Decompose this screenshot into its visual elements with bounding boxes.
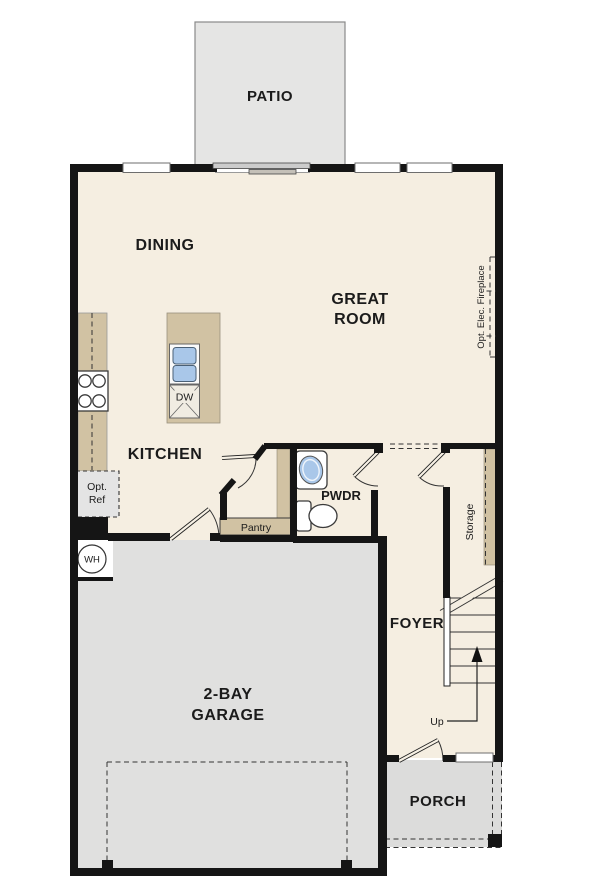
patio-label: PATIO xyxy=(247,88,293,105)
wall-porch-top xyxy=(387,755,399,762)
porch-label: PORCH xyxy=(410,793,467,810)
dining-label: DINING xyxy=(136,237,195,254)
stair-handrail xyxy=(444,597,450,686)
opt-ref: Opt. Ref xyxy=(76,471,119,517)
garage-label-1: 2-BAY xyxy=(203,686,252,703)
kitchen-counter xyxy=(77,313,108,471)
pantry-cabinet: Pantry xyxy=(220,518,293,535)
toilet-bowl xyxy=(309,505,337,528)
up-label: Up xyxy=(430,716,444,728)
wall-top xyxy=(170,164,217,172)
kitchen-island: DW xyxy=(167,313,220,423)
wall-stair xyxy=(443,487,450,598)
wall-wh-stub xyxy=(70,577,113,581)
burner xyxy=(79,375,91,387)
garage-label-2: GARAGE xyxy=(191,707,264,724)
porch-post xyxy=(488,834,502,847)
garage-floor xyxy=(78,540,378,868)
wall-porch-top xyxy=(443,755,456,762)
floor-plan: Opt. Ref DW Pantry Storage WH xyxy=(0,0,601,877)
great-room-label-1: GREAT xyxy=(331,291,388,308)
wall-garage-bottom xyxy=(70,868,387,876)
water-heater: WH xyxy=(72,540,113,577)
storage-label: Storage xyxy=(464,503,476,540)
wall-top xyxy=(400,164,407,172)
fireplace-label: Opt. Elec. Fireplace xyxy=(476,265,487,348)
wall-garage-right xyxy=(378,536,387,868)
garage-door-jamb xyxy=(341,860,352,868)
wall-porch-top xyxy=(493,755,503,762)
wall-pantry-left xyxy=(220,493,227,520)
sink-basin xyxy=(173,366,196,382)
wall-right xyxy=(495,164,503,762)
window xyxy=(407,163,452,173)
burner xyxy=(93,375,105,387)
sink-basin xyxy=(173,348,196,365)
wall-pwdr-right xyxy=(371,490,378,542)
wall-hall-top xyxy=(264,443,383,449)
sliding-door-panel xyxy=(213,163,310,169)
wall-top xyxy=(308,164,355,172)
great-room-label-2: ROOM xyxy=(334,311,386,328)
wh-label: WH xyxy=(84,555,100,566)
window-front xyxy=(456,753,493,762)
foyer-label: FOYER xyxy=(390,615,444,632)
sliding-door-panel xyxy=(249,170,296,175)
floor-plan-page: Opt. Ref DW Pantry Storage WH xyxy=(0,0,601,877)
burner xyxy=(93,395,105,407)
wall-pantry-pwdr xyxy=(290,443,297,542)
burner xyxy=(79,395,91,407)
kitchen-label: KITCHEN xyxy=(128,446,203,463)
wall-kitchen-garage xyxy=(108,533,170,541)
wall-pwdr-garage xyxy=(293,536,378,543)
window xyxy=(123,163,170,173)
wall-kitchen-garage xyxy=(210,533,220,541)
garage-door-jamb xyxy=(102,860,113,868)
pantry-label: Pantry xyxy=(241,522,272,534)
wall-storage-top xyxy=(443,443,503,449)
wall-pantry-garage xyxy=(220,535,293,542)
wall-block-left xyxy=(70,517,108,540)
opt-ref-label-2: Ref xyxy=(89,494,105,506)
window xyxy=(355,163,400,173)
opt-ref-label-1: Opt. xyxy=(87,481,107,493)
wall-post xyxy=(374,443,383,453)
pwdr-label: PWDR xyxy=(321,488,361,503)
dw-label: DW xyxy=(176,392,194,404)
